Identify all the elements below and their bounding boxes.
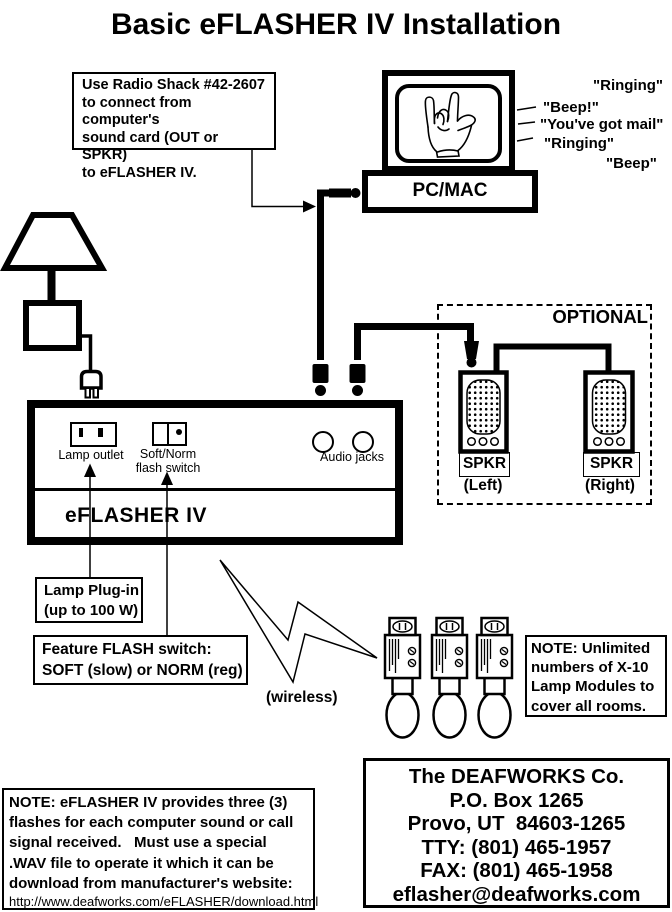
note-line: to eFLASHER IV. [82, 165, 266, 183]
x10-note-box: NOTE: Unlimited numbers of X-10 Lamp Mod… [525, 635, 667, 717]
flash-switch-note-box: Feature FLASH switch: SOFT (slow) or NOR… [33, 635, 248, 685]
note-line: Use Radio Shack #42-2607 [82, 77, 266, 95]
computer-monitor [382, 70, 515, 172]
spkr-right-label-box: SPKR [583, 452, 640, 477]
eflasher-device: Lamp outlet Soft/Norm flash switch Audio… [27, 400, 403, 545]
outlet-slot [98, 428, 103, 437]
company-info-box: The DEAFWORKS Co. P.O. Box 1265 Provo, U… [363, 758, 670, 908]
spkr-left-label-box: SPKR [459, 452, 510, 477]
lamp-figure [5, 215, 102, 398]
switch-divider [167, 424, 169, 444]
spkr-left-sub: (Left) [452, 477, 514, 495]
sound-quote: "Beep" [606, 155, 657, 172]
sound-quote: "Ringing" [544, 135, 614, 152]
audio-jacks-label: Audio jacks [297, 451, 407, 465]
page-title: Basic eFLASHER IV Installation [0, 8, 672, 42]
x10-lamp-module [385, 618, 420, 738]
computer-base: PC/MAC [362, 170, 538, 213]
quote-dash-lines [517, 107, 536, 141]
sound-quote: "Beep!" [543, 99, 599, 116]
wireless-label: (wireless) [266, 689, 356, 707]
monitor-screen [395, 84, 502, 163]
sound-quote: "You've got mail" [540, 116, 663, 133]
computer-label: PC/MAC [413, 180, 488, 201]
optional-label: OPTIONAL [546, 306, 648, 328]
bottom-note-box: NOTE: eFLASHER IV provides three (3) fla… [2, 788, 315, 910]
spkr-right-sub: (Right) [574, 477, 646, 495]
company-name: The DEAFWORKS Co. [366, 765, 667, 789]
lamp-cord [79, 336, 91, 372]
sound-quote: "Ringing" [593, 77, 663, 94]
device-name: eFLASHER IV [65, 504, 207, 528]
device-divider [35, 488, 395, 491]
note-line: to connect from computer's [82, 95, 266, 130]
outlet-slot [79, 428, 84, 437]
audio-cable-pc [313, 188, 361, 396]
x10-lamp-module [477, 618, 512, 738]
company-email: eflasher@deafworks.com [366, 883, 667, 907]
x10-lamp-module [432, 618, 467, 738]
installation-diagram: Basic eFLASHER IV Installation Use Radio… [0, 0, 672, 912]
lamp-plug [82, 372, 102, 389]
note-line: sound card (OUT or SPKR) [82, 130, 266, 165]
switch-dot [176, 429, 182, 435]
switch-label: Soft/Norm flash switch [123, 448, 213, 475]
radio-shack-note-box: Use Radio Shack #42-2607 to connect from… [72, 72, 276, 150]
download-url: http://www.deafworks.com/eFLASHER/downlo… [9, 894, 308, 910]
soft-norm-switch [152, 422, 187, 446]
lamp-outlet [70, 422, 117, 447]
lamp-plugin-note-box: Lamp Plug-in (up to 100 W) [35, 577, 143, 623]
